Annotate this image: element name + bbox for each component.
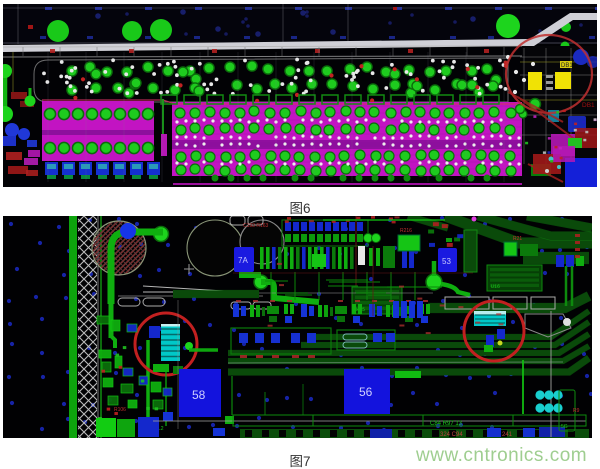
svg-text:56: 56 (359, 385, 373, 399)
svg-text:C84 R97 13: C84 R97 13 (430, 421, 463, 427)
svg-text:58: 58 (192, 388, 206, 402)
svg-text:C193 R163: C193 R163 (243, 223, 269, 229)
svg-text:DB1: DB1 (582, 102, 595, 109)
svg-text:53: 53 (442, 257, 451, 266)
svg-text:R9: R9 (573, 408, 580, 414)
svg-text:U16: U16 (491, 284, 500, 290)
svg-text:DB1: DB1 (561, 63, 573, 69)
svg-text:7A: 7A (238, 256, 248, 265)
svg-text:5G: 5G (561, 424, 568, 430)
svg-text:R21: R21 (513, 236, 522, 242)
svg-text:R216: R216 (400, 228, 412, 234)
svg-text:324 C94: 324 C94 (440, 432, 463, 438)
svg-text:241: 241 (502, 432, 513, 438)
